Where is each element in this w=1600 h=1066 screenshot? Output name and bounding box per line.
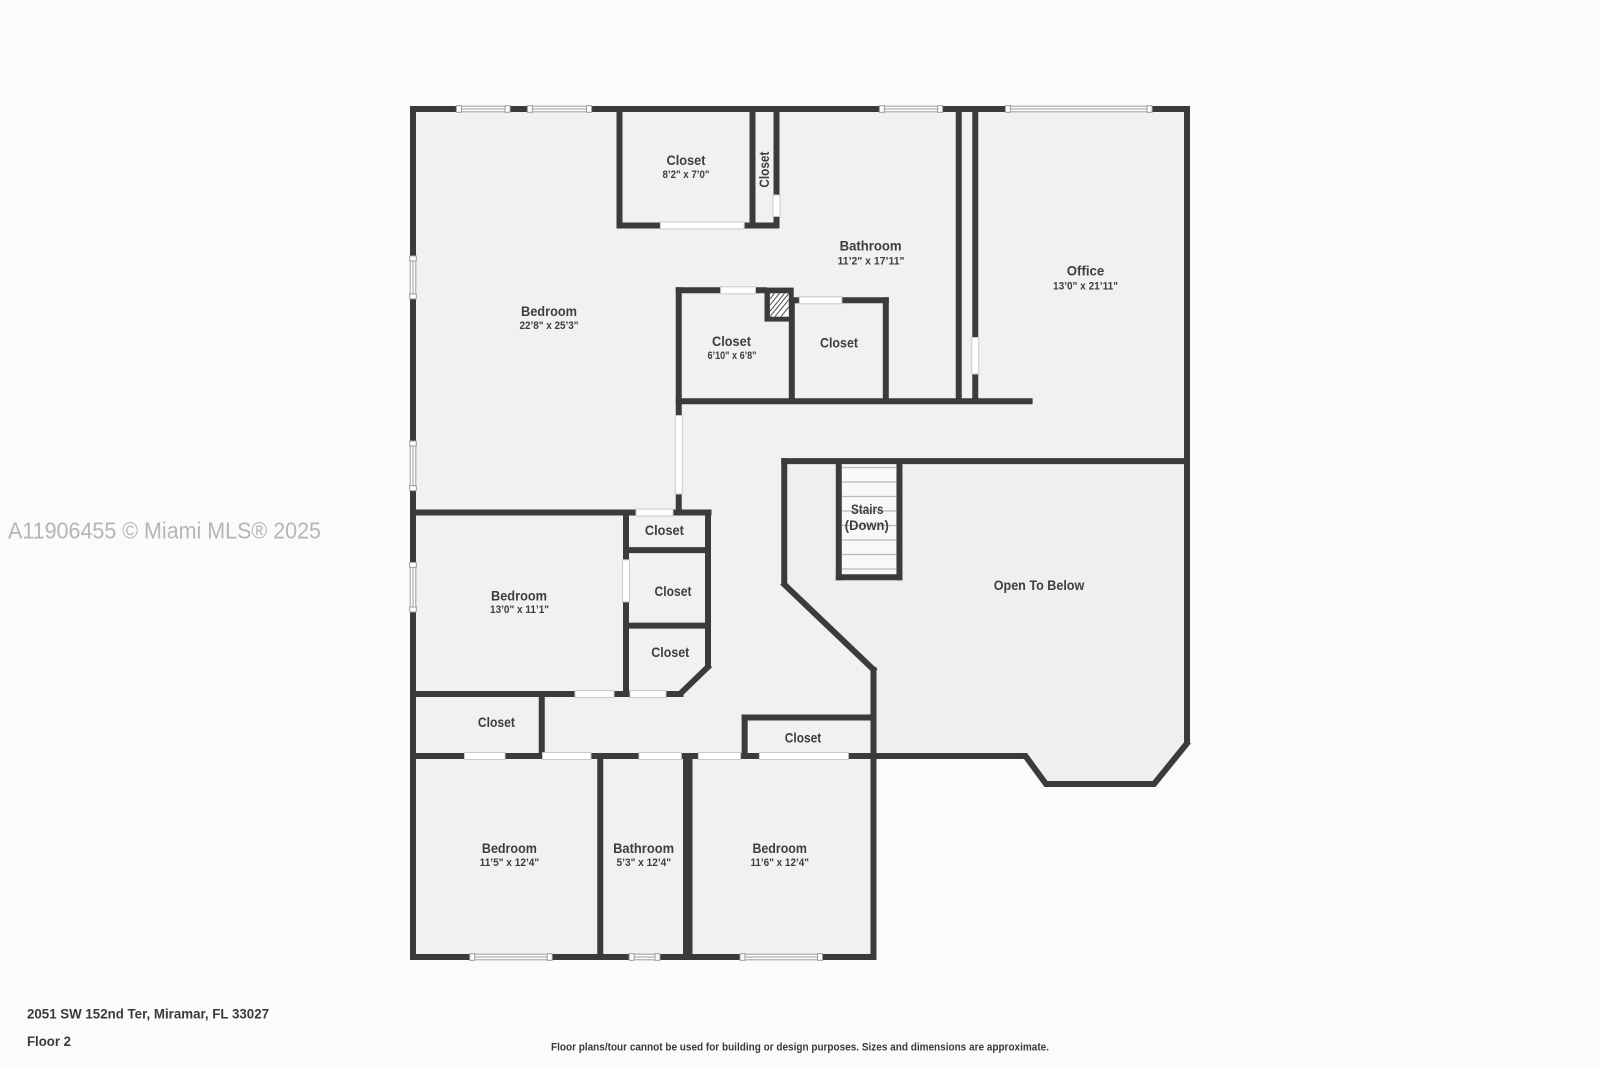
svg-text:11’2" x 17’11": 11’2" x 17’11": [838, 256, 905, 268]
svg-text:13’0" x 21’11": 13’0" x 21’11": [1053, 280, 1118, 292]
svg-text:(Down): (Down): [845, 518, 889, 533]
svg-text:Bathroom: Bathroom: [840, 238, 902, 253]
svg-text:2051 SW 152nd Ter, Miramar, FL: 2051 SW 152nd Ter, Miramar, FL 33027: [27, 1006, 269, 1021]
svg-text:Bedroom: Bedroom: [752, 841, 807, 856]
svg-text:Closet: Closet: [820, 336, 858, 351]
svg-text:11’6" x 12’4": 11’6" x 12’4": [750, 857, 809, 869]
svg-text:22’8" x 25’3": 22’8" x 25’3": [520, 320, 579, 332]
svg-text:Closet: Closet: [478, 715, 515, 730]
svg-text:Bedroom: Bedroom: [521, 304, 577, 319]
svg-text:Open To Below: Open To Below: [994, 578, 1085, 593]
svg-text:Bedroom: Bedroom: [491, 588, 547, 603]
svg-text:Floor plans/tour cannot be use: Floor plans/tour cannot be used for buil…: [551, 1041, 1049, 1053]
svg-text:Bathroom: Bathroom: [613, 841, 674, 856]
svg-text:Closet: Closet: [651, 645, 689, 660]
svg-text:Office: Office: [1067, 263, 1105, 278]
svg-text:Stairs: Stairs: [851, 502, 884, 517]
svg-text:Floor 2: Floor 2: [27, 1034, 71, 1049]
svg-text:Closet: Closet: [655, 584, 692, 599]
svg-text:6’10" x 6’8": 6’10" x 6’8": [708, 350, 757, 362]
svg-text:Closet: Closet: [785, 730, 822, 745]
svg-text:13’0" x 11’1": 13’0" x 11’1": [490, 604, 549, 616]
svg-text:Closet: Closet: [667, 153, 706, 168]
svg-text:8’2" x 7’0": 8’2" x 7’0": [663, 169, 710, 181]
svg-text:Closet: Closet: [757, 151, 772, 187]
svg-text:5’3" x 12’4": 5’3" x 12’4": [617, 857, 672, 869]
svg-text:Closet: Closet: [645, 523, 684, 538]
svg-text:Bedroom: Bedroom: [482, 841, 537, 856]
svg-text:Closet: Closet: [712, 334, 751, 349]
svg-text:11’5" x 12’4": 11’5" x 12’4": [480, 857, 540, 869]
svg-text:A11906455 © Miami MLS® 2025: A11906455 © Miami MLS® 2025: [8, 518, 321, 544]
